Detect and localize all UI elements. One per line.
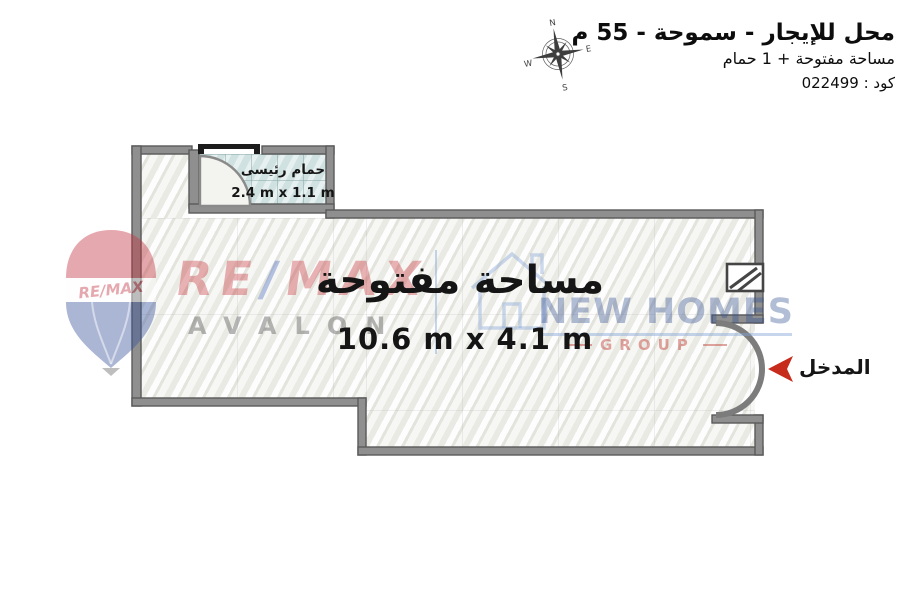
listing-subtitle: مساحة مفتوحة + 1 حمام [571,49,895,68]
bathroom-dimensions: 2.4 m x 1.1 m [231,185,335,201]
compass-east-label: E [585,44,592,55]
compass-south-label: S [562,83,569,94]
compass-north-label: N [549,18,557,29]
floor-plan-page: RE/MAX RE/MAX AVALON NEW HOMES GROUP مسا… [0,0,900,599]
listing-header: محل للإيجار - سموحة - 55 م مساحة مفتوحة … [571,20,895,92]
wall-right-upper [755,210,763,323]
listing-title: محل للإيجار - سموحة - 55 م [571,20,895,46]
bathroom-door-lintel [198,144,260,154]
listing-code: كود : 022499 [571,74,895,92]
open-area-label: مساحة مفتوحة [300,258,620,303]
compass-rose-icon: N E S W [520,14,600,98]
wall-top-main [326,210,763,218]
wall-bottom-main [358,447,763,455]
open-area-dimensions: 10.6 m x 4.1 m [330,322,600,356]
wall-right-lower [755,415,763,455]
wall-bottom-left [132,398,366,406]
wall-bathroom-internal [189,150,199,208]
wall-step [358,398,366,455]
compass-west-label: W [523,59,534,70]
wall-left [132,146,141,406]
wall-top-left-a [132,146,192,154]
wall-bathroom-right [326,146,334,218]
wall-top-left-b [262,146,334,154]
entrance-arrow-icon [768,356,793,382]
bathroom-label: حمام رئيسى [233,162,333,178]
entrance-label: المدخل [799,355,871,379]
balloon-brand-text: RE/MAX [78,277,146,302]
